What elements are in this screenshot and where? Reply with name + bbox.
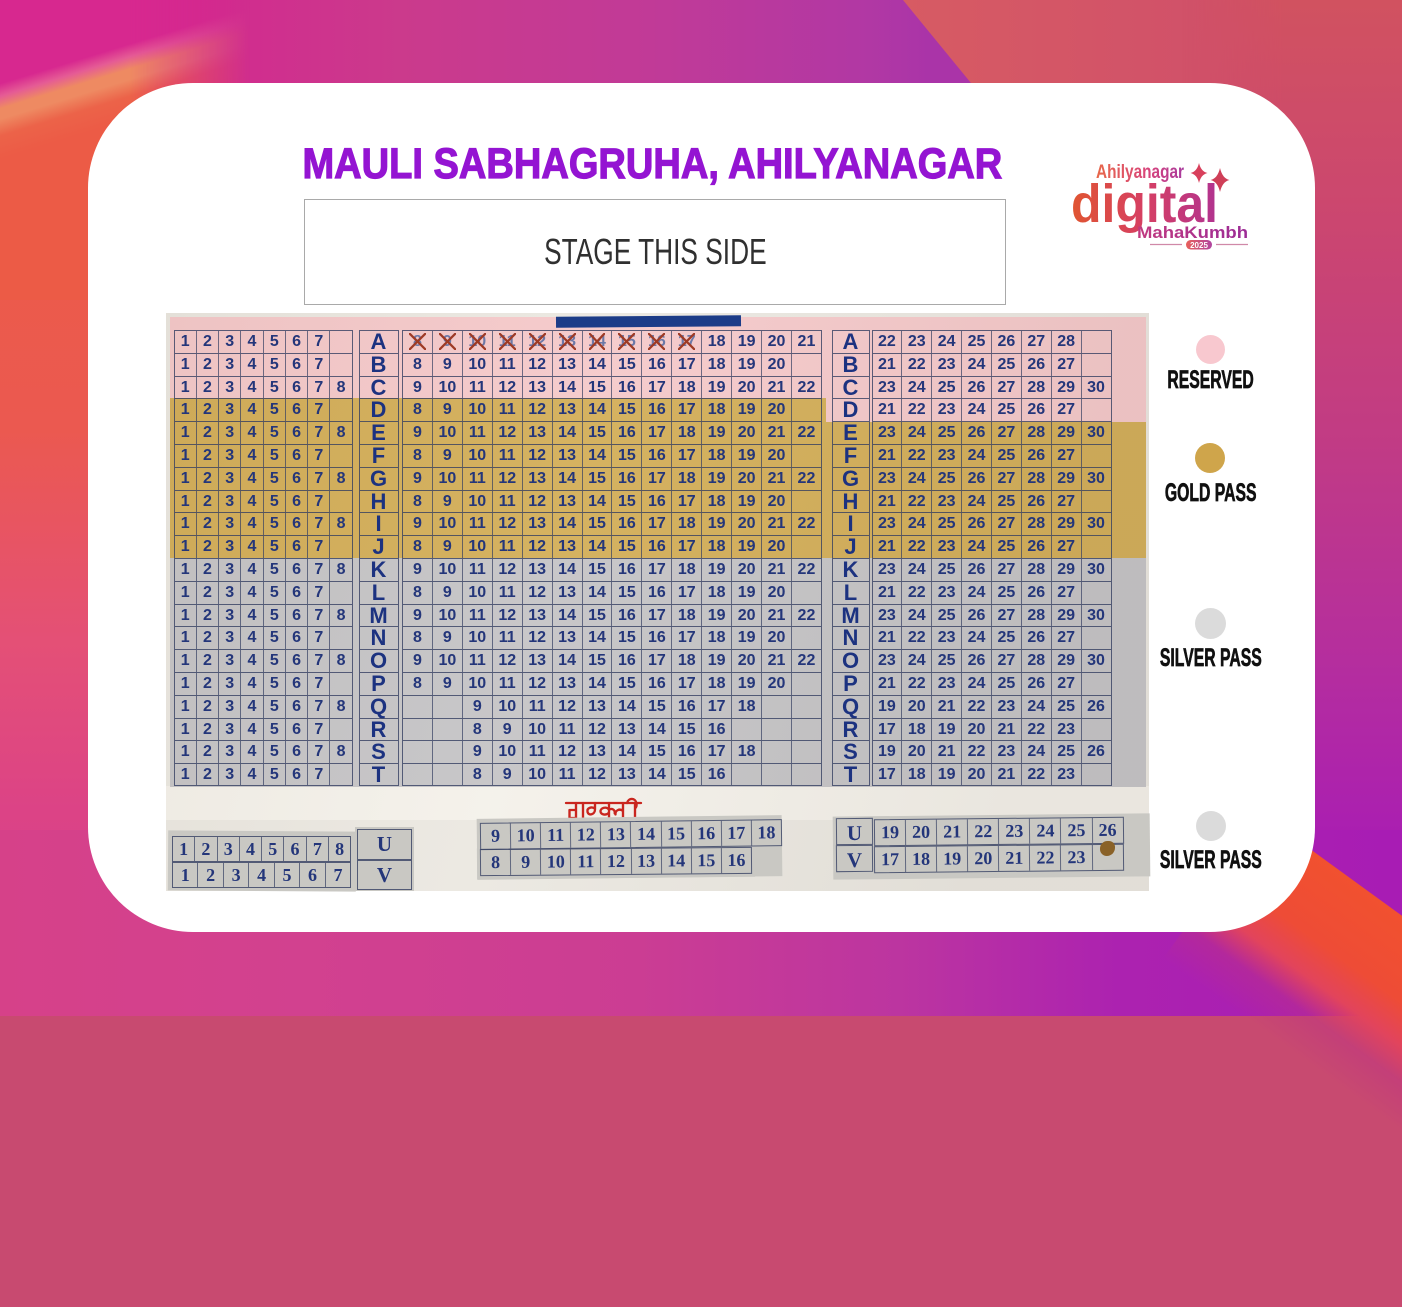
svg-text:MahaKumbh: MahaKumbh (1137, 223, 1248, 242)
svg-text:2025: 2025 (1190, 241, 1208, 250)
